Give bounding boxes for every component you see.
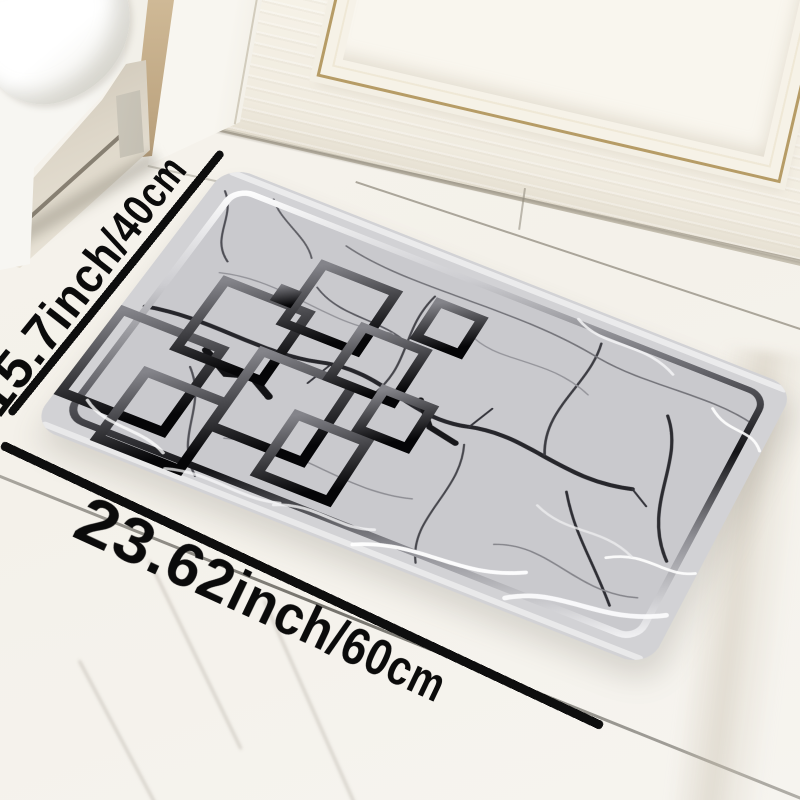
product-photo-scene: 15.7inch/40cm 23.62inch/60cm: [0, 0, 800, 800]
floor-marble-vein: [78, 660, 164, 800]
